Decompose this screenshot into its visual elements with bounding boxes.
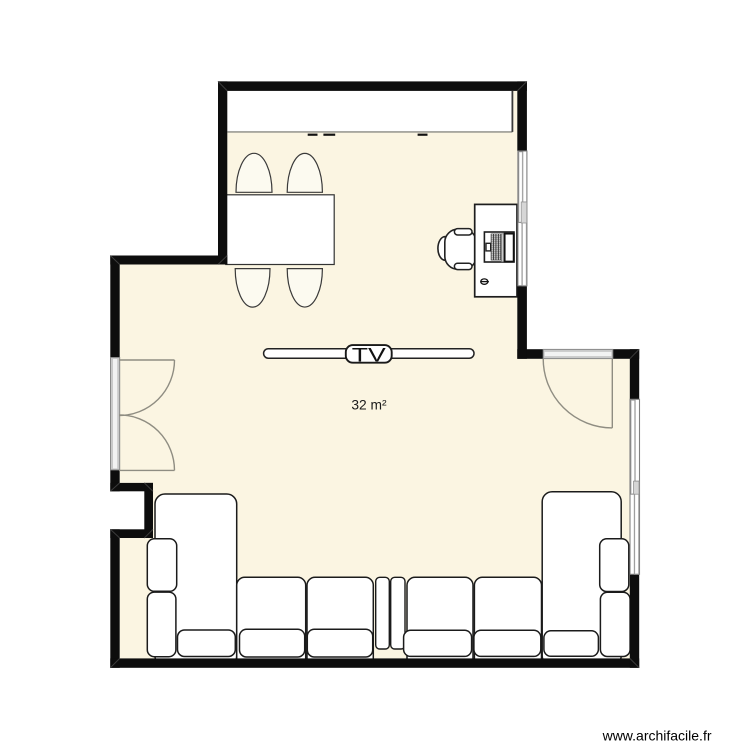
svg-text:32 m²: 32 m²	[351, 398, 387, 413]
svg-text:TV: TV	[352, 345, 387, 367]
svg-text:www.archifacile.fr: www.archifacile.fr	[602, 727, 712, 743]
